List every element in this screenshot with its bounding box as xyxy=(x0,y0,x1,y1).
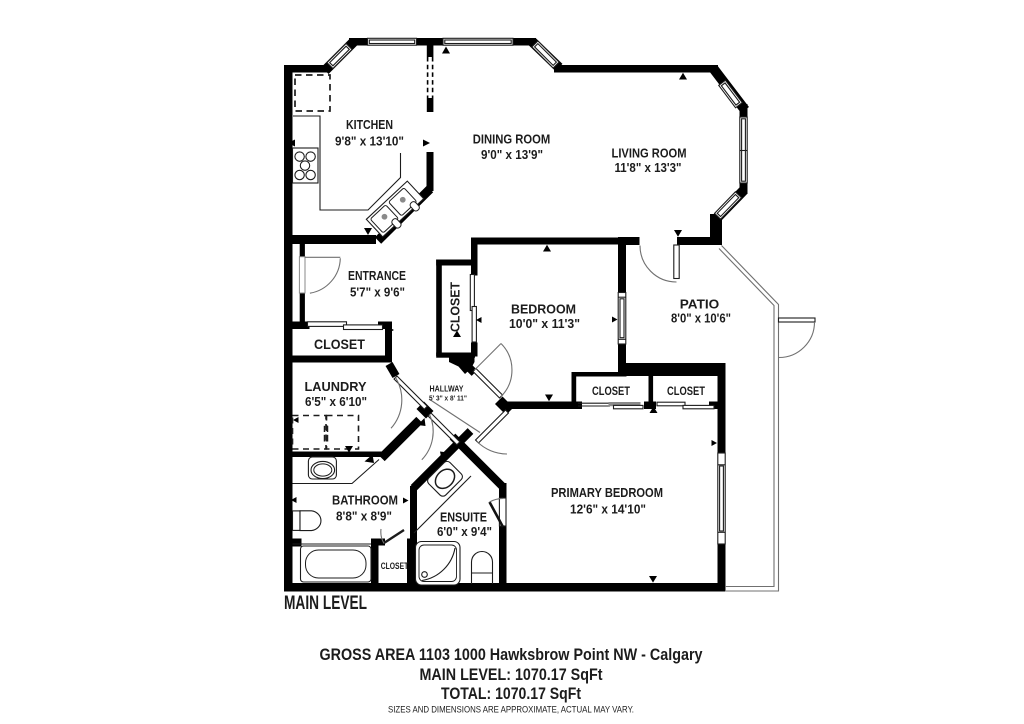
svg-text:PRIMARY BEDROOM: PRIMARY BEDROOM xyxy=(551,486,663,500)
svg-text:PATIO: PATIO xyxy=(680,298,720,312)
svg-text:ENTRANCE: ENTRANCE xyxy=(348,269,406,283)
svg-text:CLOSET: CLOSET xyxy=(381,561,409,572)
svg-text:MAIN LEVEL: 1070.17 SqFt: MAIN LEVEL: 1070.17 SqFt xyxy=(420,666,603,684)
svg-text:5'7" x 9'6": 5'7" x 9'6" xyxy=(350,285,405,300)
svg-text:CLOSET: CLOSET xyxy=(314,337,366,352)
svg-text:5' 3" x 8' 11": 5' 3" x 8' 11" xyxy=(429,396,467,403)
svg-text:SIZES AND DIMENSIONS ARE APPRO: SIZES AND DIMENSIONS ARE APPROXIMATE, AC… xyxy=(388,705,634,716)
svg-text:ENSUITE: ENSUITE xyxy=(440,511,487,525)
svg-text:BEDROOM: BEDROOM xyxy=(511,303,576,317)
svg-text:CLOSET: CLOSET xyxy=(448,282,463,332)
svg-text:LAUNDRY: LAUNDRY xyxy=(305,380,368,394)
svg-text:10'0" x 11'3": 10'0" x 11'3" xyxy=(509,316,580,331)
svg-text:KITCHEN: KITCHEN xyxy=(346,118,393,132)
svg-text:BATHROOM: BATHROOM xyxy=(332,494,398,508)
svg-text:6'5" x 6'10": 6'5" x 6'10" xyxy=(305,394,367,409)
svg-text:HALLWAY: HALLWAY xyxy=(430,384,464,394)
svg-text:TOTAL: 1070.17 SqFt: TOTAL: 1070.17 SqFt xyxy=(441,685,581,703)
svg-text:9'0" x 13'9": 9'0" x 13'9" xyxy=(481,147,543,162)
svg-text:LIVING ROOM: LIVING ROOM xyxy=(612,147,687,161)
svg-text:GROSS AREA 1103 1000 Hawksbrow: GROSS AREA 1103 1000 Hawksbrow Point NW … xyxy=(320,646,704,664)
svg-text:MAIN LEVEL: MAIN LEVEL xyxy=(284,592,367,614)
svg-text:6'0" x 9'4": 6'0" x 9'4" xyxy=(437,524,492,539)
svg-text:12'6" x 14'10": 12'6" x 14'10" xyxy=(570,502,646,517)
svg-text:CLOSET: CLOSET xyxy=(592,386,630,398)
svg-text:9'8" x 13'10": 9'8" x 13'10" xyxy=(335,134,404,149)
svg-text:8'8" x 8'9": 8'8" x 8'9" xyxy=(336,509,392,524)
svg-text:DINING ROOM: DINING ROOM xyxy=(473,133,551,147)
svg-text:11'8" x 13'3": 11'8" x 13'3" xyxy=(615,160,682,175)
svg-text:8'0" x 10'6": 8'0" x 10'6" xyxy=(671,311,731,326)
svg-text:CLOSET: CLOSET xyxy=(667,386,705,398)
